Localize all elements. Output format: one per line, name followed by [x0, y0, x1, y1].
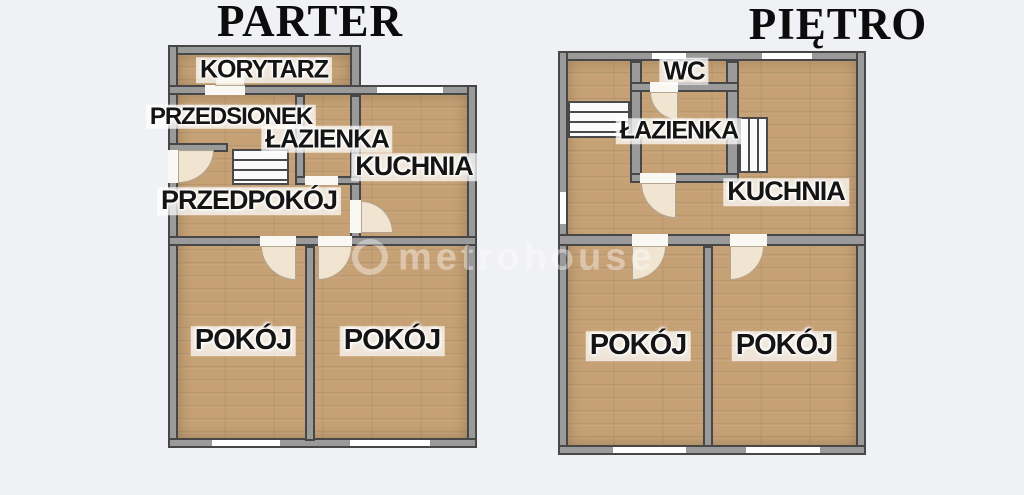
door-opening — [305, 176, 338, 185]
room-label-przedpokoj: PRZEDPOKÓJ — [157, 187, 341, 215]
door-opening — [318, 236, 352, 246]
window — [762, 51, 812, 61]
stairs — [232, 149, 289, 185]
door-opening — [205, 85, 245, 95]
door-opening — [260, 236, 296, 246]
room-label-kuchnia-parter: KUCHNIA — [351, 153, 477, 181]
room-label-pokoj-parter-prawy: POKÓJ — [340, 326, 445, 356]
room-label-pokoj-pietro-lewy: POKÓJ — [586, 331, 691, 361]
door-opening — [350, 200, 361, 233]
door-opening-entrance — [168, 150, 178, 183]
window — [558, 192, 568, 224]
room-label-lazienka-pietro: ŁAZIENKA — [616, 118, 742, 144]
door-opening — [640, 173, 676, 183]
watermark-text: metrohouse — [398, 237, 655, 280]
room-label-lazienka-parter: ŁAZIENKA — [261, 126, 392, 153]
watermark-logo-icon — [352, 239, 388, 275]
room-label-pokoj-parter-lewy: POKÓJ — [191, 326, 296, 356]
floor-title-parter: PARTER — [217, 0, 403, 47]
wall — [558, 51, 866, 61]
wall — [305, 246, 315, 441]
stairs — [739, 117, 768, 173]
room-label-kuchnia-pietro: KUCHNIA — [723, 178, 849, 206]
window — [212, 438, 280, 448]
floor-title-pietro: PIĘTRO — [749, 0, 928, 50]
room-label-korytarz: KORYTARZ — [196, 57, 332, 83]
room-label-wc: WC — [659, 58, 708, 85]
room-label-pokoj-pietro-prawy: POKÓJ — [732, 331, 837, 361]
door-opening — [730, 234, 767, 246]
window — [350, 438, 430, 448]
window — [377, 85, 443, 95]
window — [746, 445, 820, 455]
wall — [856, 51, 866, 455]
wall — [703, 246, 713, 447]
window — [613, 445, 686, 455]
floorplan-image: PARTER PIĘTRO — [0, 0, 1024, 495]
